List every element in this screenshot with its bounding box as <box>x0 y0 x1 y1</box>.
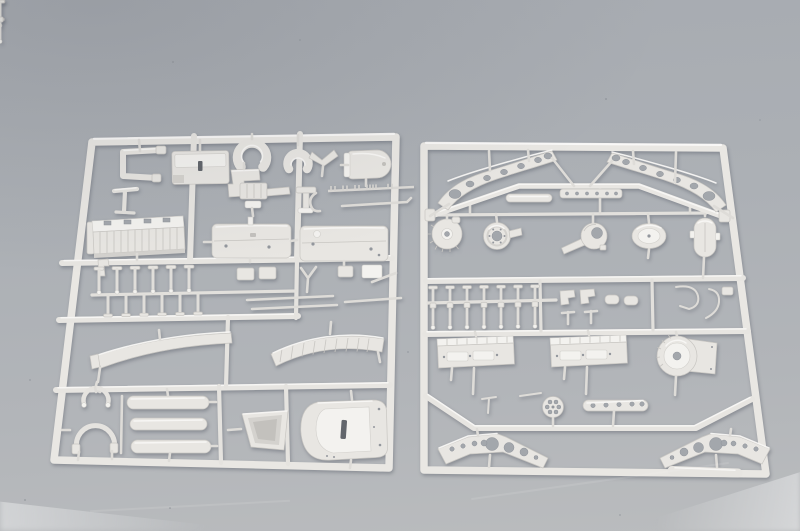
dust-specks <box>0 0 800 531</box>
photo-canvas <box>0 0 800 531</box>
